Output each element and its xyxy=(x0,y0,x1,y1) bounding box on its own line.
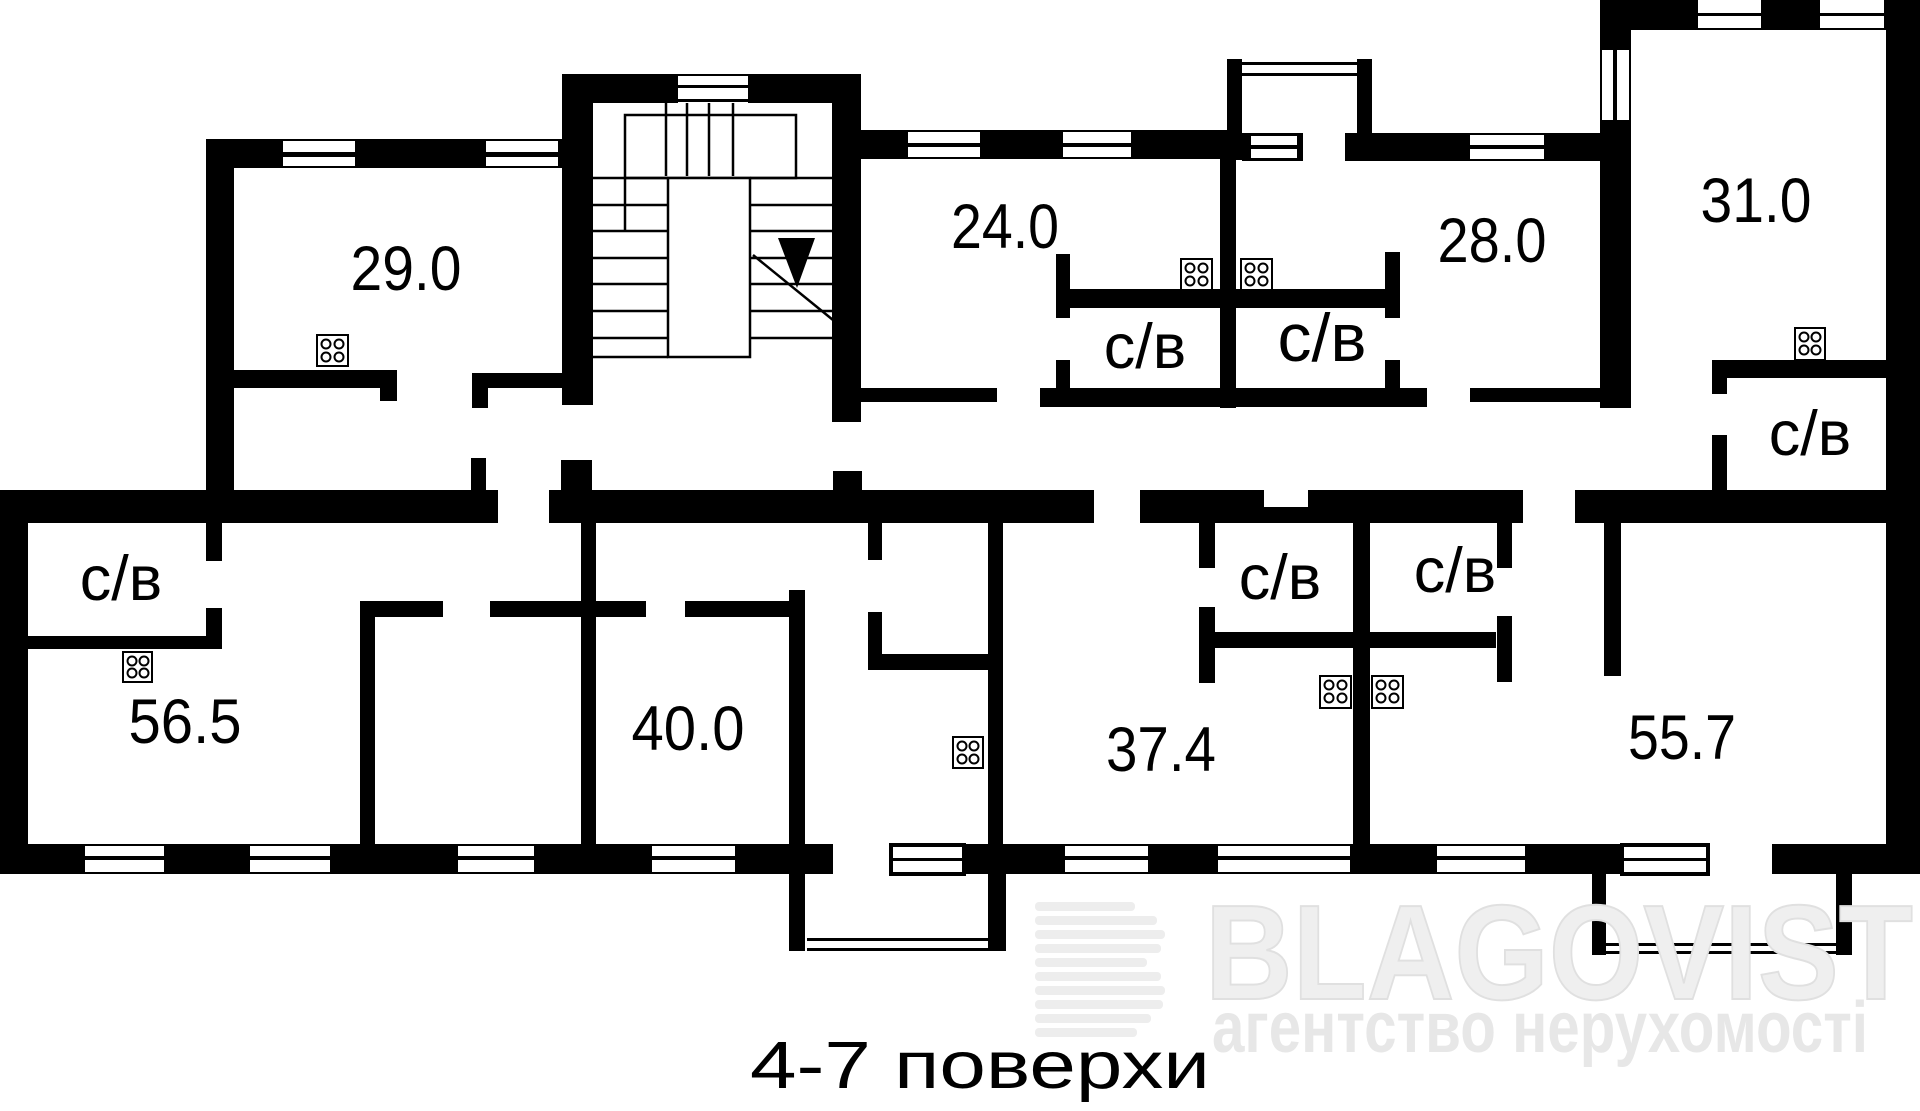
svg-text:31.0: 31.0 xyxy=(1701,166,1812,236)
svg-text:агентство нерухомості: агентство нерухомості xyxy=(1212,988,1868,1068)
svg-text:4-7 поверхи: 4-7 поверхи xyxy=(750,1028,1210,1103)
svg-text:с/в: с/в xyxy=(1104,312,1186,382)
svg-text:37.4: 37.4 xyxy=(1106,715,1216,785)
svg-text:28.0: 28.0 xyxy=(1438,206,1547,276)
svg-text:с/в: с/в xyxy=(1239,543,1321,613)
svg-text:29.0: 29.0 xyxy=(351,234,462,304)
svg-text:40.0: 40.0 xyxy=(632,694,745,764)
svg-text:с/в: с/в xyxy=(80,544,162,614)
svg-text:24.0: 24.0 xyxy=(951,192,1059,262)
svg-text:с/в: с/в xyxy=(1277,300,1366,376)
svg-text:с/в: с/в xyxy=(1769,399,1851,469)
svg-text:56.5: 56.5 xyxy=(129,687,242,757)
svg-text:55.7: 55.7 xyxy=(1628,703,1736,773)
svg-text:с/в: с/в xyxy=(1414,536,1496,606)
